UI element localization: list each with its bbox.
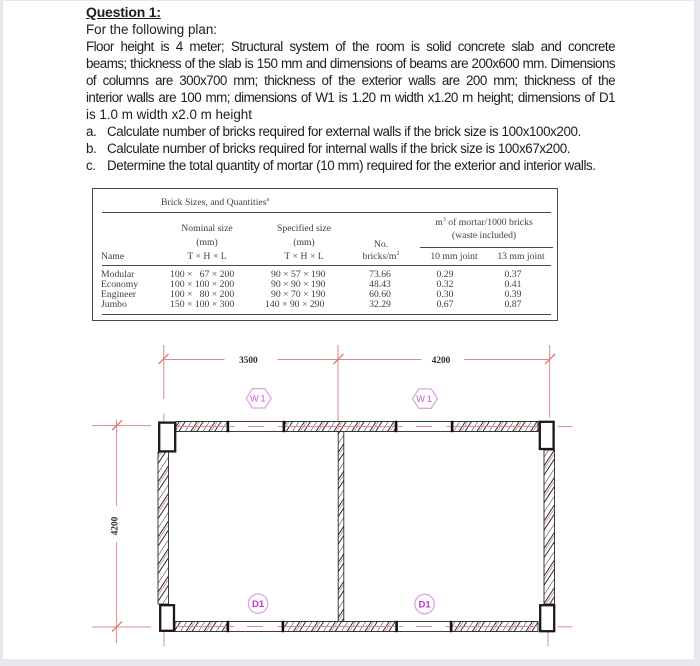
svg-text:3500: 3500 (239, 356, 258, 366)
svg-text:D1: D1 (252, 599, 265, 610)
svg-text:D1: D1 (419, 600, 432, 611)
svg-text:4200: 4200 (111, 516, 121, 535)
svg-text:4200: 4200 (432, 356, 451, 366)
svg-text:W1: W1 (416, 394, 433, 404)
svg-text:W1: W1 (250, 394, 267, 404)
